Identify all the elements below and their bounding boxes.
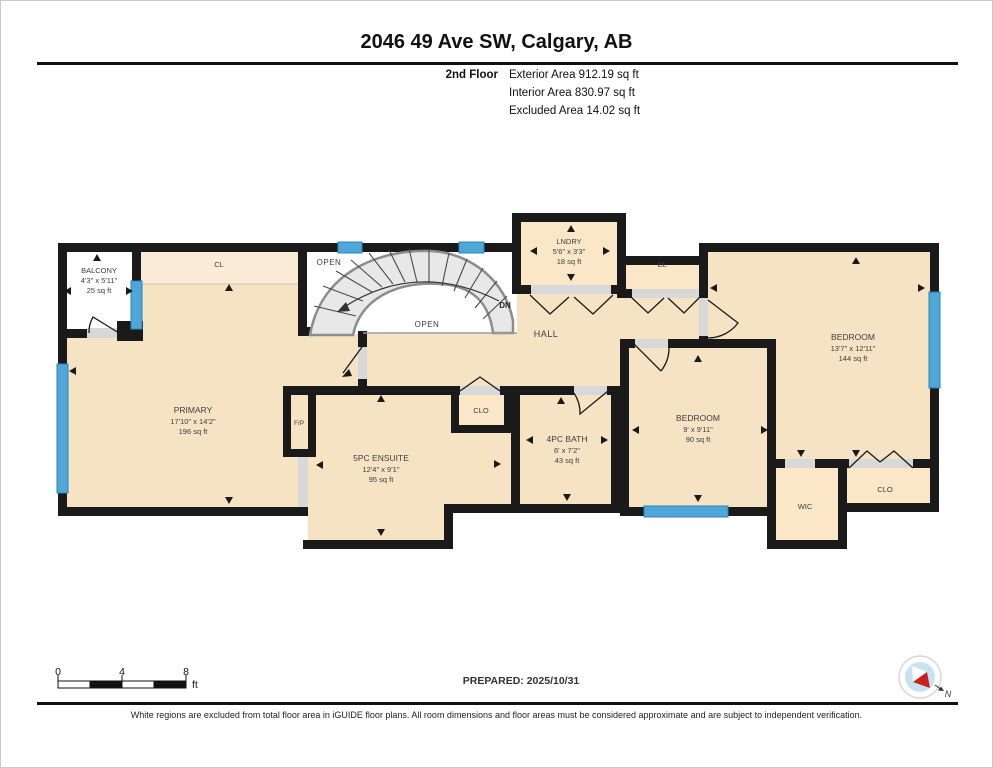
balcony-name: BALCONY [81,266,117,275]
primary-dims: 17'10" x 14'2" [170,417,216,426]
bedroom-right-name: BEDROOM [831,332,875,342]
compass: N [894,651,964,703]
bath-dims: 6' x 7'2" [554,446,580,455]
wic-label: WIC [798,502,813,511]
disclaimer-text: White regions are excluded from total fl… [1,710,992,720]
window-balcony [131,281,142,329]
bedroom-right-dims: 13'7" x 12'11" [831,344,876,353]
cl-primary-label: CL [214,260,224,269]
excluded-area: Excluded Area 14.02 sq ft [509,105,640,117]
prepared-date: PREPARED: 2025/10/31 [361,675,681,687]
window-stairs-1 [338,242,362,253]
cl-hall-label: CL [657,260,667,269]
compass-north-label: N [945,689,952,699]
scale-bar [51,673,196,693]
open-lower-label: OPEN [415,320,440,329]
balcony-dims: 4'3" x 5'11" [81,276,118,285]
floor-plan-page: 2046 49 Ave SW, Calgary, AB 2nd Floor Ex… [0,0,993,768]
floor-label: 2nd Floor [341,69,498,81]
laundry-dims: 5'6" x 3'3" [553,247,586,256]
clo-ensuite-label: CLO [473,406,489,415]
balcony-area: 25 sq ft [87,286,113,295]
room-floors [63,222,934,546]
down-label: DN [499,301,511,310]
window-stairs-2 [459,242,484,253]
window-primary [57,364,68,493]
open-upper-label: OPEN [317,258,342,267]
ensuite-dims: 12'4" x 9'1" [363,465,400,474]
primary-area: 196 sq ft [179,427,209,436]
bedroom-right-area: 144 sq ft [839,354,869,363]
fireplace-label: F/P [294,420,304,427]
bottom-rule [37,702,958,705]
scale-unit: ft [192,679,198,691]
ensuite-name: 5PC ENSUITE [353,453,409,463]
laundry-area: 18 sq ft [557,257,583,266]
clo-bedroom-label: CLO [877,485,893,494]
exterior-area: Exterior Area 912.19 sq ft [509,69,639,81]
room-label-laundry: LNDRY 5'6" x 3'3" 18 sq ft [553,237,586,266]
floor-plan-drawing: BALCONY 4'3" x 5'11" 25 sq ft PRIMARY 17… [41,196,956,566]
interior-area: Interior Area 830.97 sq ft [509,87,635,99]
page-title: 2046 49 Ave SW, Calgary, AB [1,31,992,54]
top-rule [37,62,958,65]
hall-label: HALL [534,329,559,339]
window-bedroom-mid [644,506,728,517]
ensuite-area: 95 sq ft [369,475,395,484]
bedroom-mid-area: 90 sq ft [686,435,712,444]
bedroom-mid-name: BEDROOM [676,413,720,423]
bedroom-mid-dims: 9' x 9'11" [683,425,713,434]
primary-name: PRIMARY [174,405,213,415]
laundry-name: LNDRY [556,237,581,246]
window-bedroom-right [929,292,940,388]
bath-name: 4PC BATH [547,434,588,444]
bath-area: 43 sq ft [555,456,581,465]
